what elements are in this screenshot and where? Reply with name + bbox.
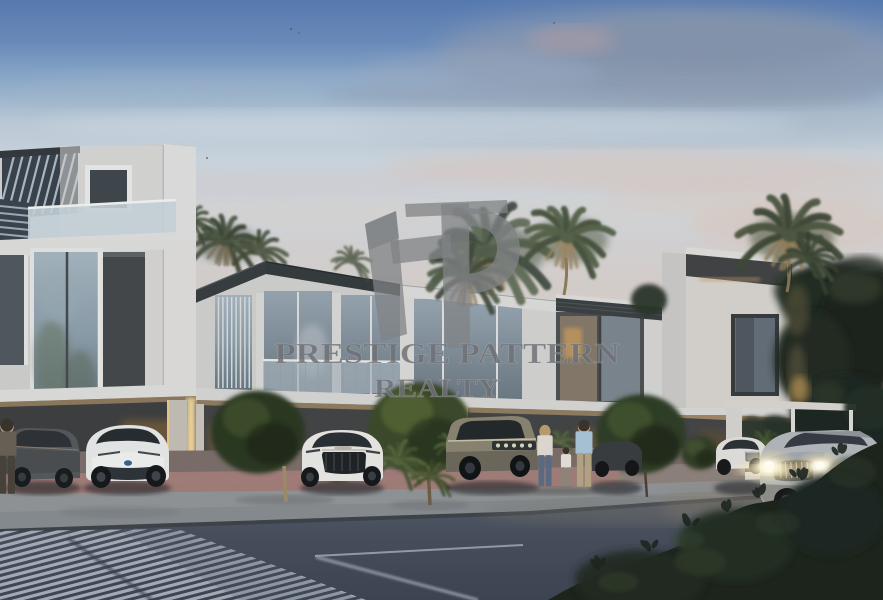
svg-text:REALTY: REALTY (374, 374, 500, 403)
svg-text:PRESTIGE PATTERN: PRESTIGE PATTERN (275, 339, 620, 370)
